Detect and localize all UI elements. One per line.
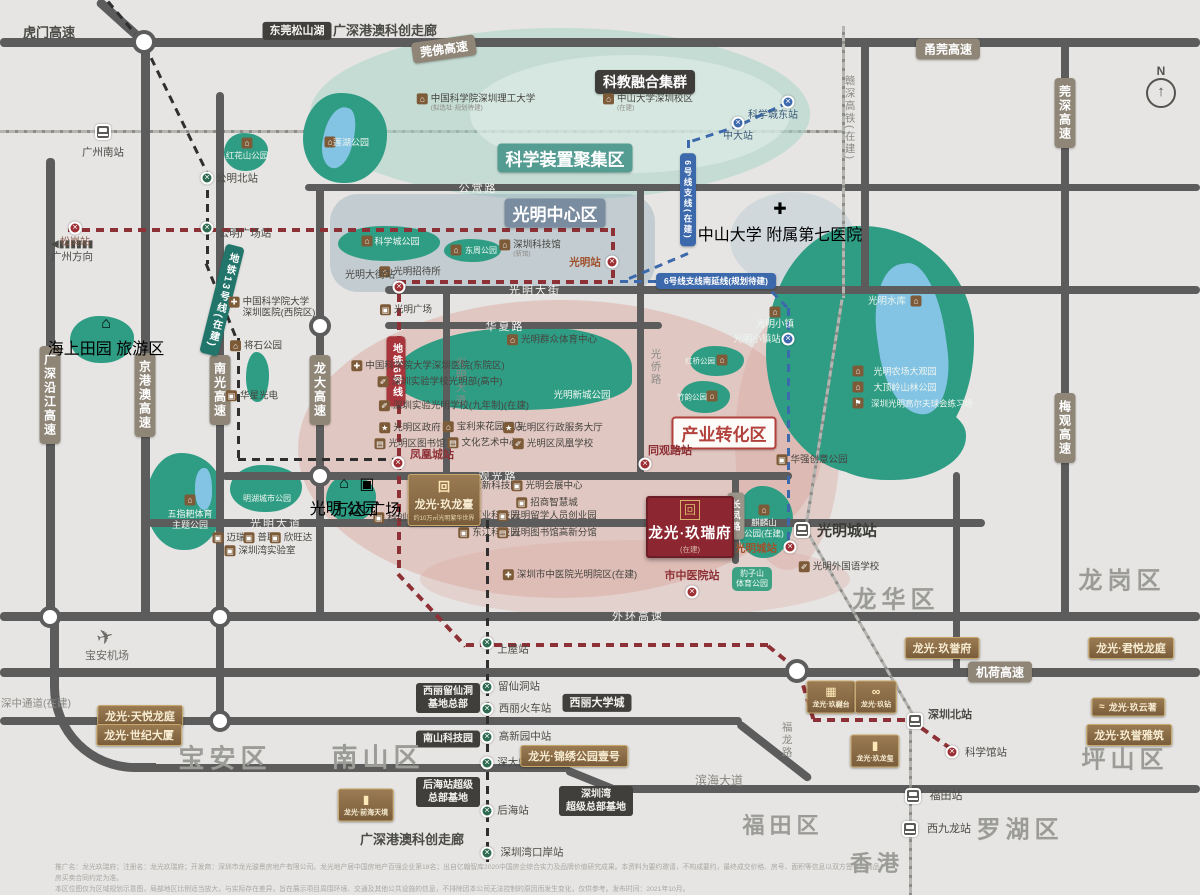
label-gaoxinyuanzhong: 高新园中站 bbox=[499, 730, 552, 743]
poi-sports-center: ⌂光明群众体育中心 bbox=[507, 334, 597, 345]
project-jiulongtai: 回龙光·玖龙臺约10万㎡光明繁华世界 bbox=[408, 474, 481, 526]
badge-xili-liuxiandong: 西丽留仙洞 基地总部 bbox=[416, 683, 480, 713]
icon-dongzhou: ⌂ bbox=[451, 245, 462, 256]
poi-cas-hospital-east: ✚中国科学院大学深圳医院(东院区) bbox=[351, 360, 504, 371]
label-tongguanlu: 同观路站 bbox=[648, 445, 692, 459]
poi-experimental-school-9y: ✐深圳实验光明学校(九年制)(在建) bbox=[379, 400, 529, 411]
poi-jiangshi-park: ⌂将石公园 bbox=[230, 340, 282, 351]
poi-guangming-plaza-icon: ▣ bbox=[380, 304, 391, 315]
poi-foreign-school-icon: ✐ bbox=[799, 561, 810, 572]
badge-edu-cluster: 科教融合集群 bbox=[595, 70, 695, 94]
poi-admin-hall: ★光明区行政服务大厅 bbox=[503, 422, 603, 433]
road-v-right-top bbox=[861, 38, 869, 292]
label-shizhongyiyuan: 市中医院站 bbox=[665, 570, 720, 584]
station-tongguanlu: ✕ bbox=[639, 458, 652, 471]
label-qilinshan: 麒麟山 公园(在建) bbox=[744, 517, 784, 538]
project-jiulongtai-icon: 回 bbox=[438, 478, 450, 495]
station-shenda: ✕ bbox=[481, 757, 494, 770]
poi-foreign-school: ✐光明外国语学校 bbox=[799, 561, 880, 572]
poi-sysu-campus: ⌂中山大学深圳校区(在建) bbox=[603, 93, 693, 112]
project-jiuyufu: 龙光·玖誉府 bbox=[905, 637, 980, 659]
label-guangmingcheng-metro: 光明城站 bbox=[735, 542, 777, 555]
badge-hwy-guanshen: 莞深高速 bbox=[1055, 78, 1076, 148]
badge-nanshan-tech: 南山科技园 bbox=[416, 731, 480, 748]
poi-mairui-icon: ▣ bbox=[212, 532, 223, 543]
station-shenzhenbei bbox=[907, 713, 923, 729]
region-futian: 福田区 bbox=[742, 808, 823, 840]
icon-wuzhipa: ⌂ bbox=[185, 495, 196, 506]
station-gongming-plaza: ✕ bbox=[201, 222, 214, 235]
icon-qilinshan: ⌂ bbox=[759, 505, 770, 516]
label-shenzhong-channel: 深中通道(在建) bbox=[1, 697, 71, 710]
poi-fenghuang-school-icon: ✐ bbox=[513, 438, 524, 449]
station-shangwu: ✕ bbox=[481, 637, 494, 650]
station-gaoxinyuanzhong: ✕ bbox=[481, 731, 494, 744]
compass-north: N↑ bbox=[1144, 64, 1178, 112]
poi-culture-art-center-icon: ▤ bbox=[447, 437, 458, 448]
label-minghu-park: 明湖城市公园 bbox=[243, 494, 291, 504]
icon-golf: ⚑ bbox=[853, 398, 864, 409]
station-houhai: ✕ bbox=[481, 805, 494, 818]
label-guangming-town-st: 光明小镇站 bbox=[733, 334, 781, 346]
road-gongchang bbox=[305, 184, 1200, 191]
label-huaxia-rd: 华夏路 bbox=[486, 318, 525, 334]
project-jiuzuan-icon: ∞ bbox=[872, 685, 881, 699]
station-shizhongyiyuan: ✕ bbox=[686, 586, 699, 599]
poi-exhibition-center-icon: ▣ bbox=[511, 480, 522, 491]
road-top-highway bbox=[0, 38, 1200, 47]
station-zhongda: ✕ bbox=[732, 117, 745, 130]
poi-exhibition-center: ▣光明会展中心 bbox=[511, 480, 582, 491]
label-shenzhenbei: 深圳北站 bbox=[928, 709, 972, 723]
poi-library-branch-icon: ▤ bbox=[497, 527, 508, 538]
project-qianhai-icon: ▮ bbox=[363, 793, 370, 807]
region-baoan: 宝安区 bbox=[178, 739, 271, 776]
poi-haishang-tianyuan-icon: ⌂ bbox=[101, 315, 111, 333]
label-guangming-st: 光明站 bbox=[569, 256, 601, 269]
location-map: 推广名：龙光玖瑞府；注册名：龙光玖瑞府；开发商：深圳市龙光骏景房地产有限公司。龙… bbox=[0, 0, 1200, 895]
disclaimer-line2: 本区位图仅为区域规划示意图，局部地区比例适当放大，与实际存在差异，旨在展示项目周… bbox=[55, 884, 885, 895]
badge-hwy-yongguan: 甬莞高速 bbox=[916, 39, 980, 60]
poi-returnee-park: ▣光明留学人员创业园 bbox=[497, 510, 597, 521]
label-zhuyun-park: 竹韵公园 bbox=[677, 392, 707, 401]
road-south-1-curve bbox=[736, 720, 813, 783]
station-guangming: ✕ bbox=[606, 256, 619, 269]
label-sports-park: 豹子山 体育公园 bbox=[732, 567, 772, 591]
poi-fenghuang-school: ✐光明区凤凰学校 bbox=[513, 438, 594, 449]
poi-szbay-lab: ▣深圳湾实验室 bbox=[224, 545, 295, 556]
project-shiji: 龙光·世纪大厦 bbox=[96, 724, 182, 746]
junction-topleft bbox=[132, 30, 156, 54]
road-v-guangqiao bbox=[637, 184, 644, 478]
poi-experimental-school-9y-icon: ✐ bbox=[379, 400, 390, 411]
poi-zhaoshang-city: ▣招商智慧城 bbox=[516, 497, 578, 508]
station-kexueguan: ✕ bbox=[946, 746, 959, 759]
icon-zhuyun: ⌂ bbox=[707, 391, 718, 402]
label-fenghuangcheng: 凤凰城站 bbox=[410, 449, 454, 463]
station-guangmingcheng-rail bbox=[794, 522, 810, 538]
poi-tcm-hospital-icon: ✚ bbox=[503, 569, 514, 580]
label-kexuechengdong: 科学城东站 bbox=[748, 110, 798, 123]
poi-cas-hospital-east-icon: ✚ bbox=[351, 360, 362, 371]
metro6-seg-c bbox=[398, 280, 613, 284]
label-kexueguan: 科学馆站 bbox=[965, 746, 1007, 759]
label-lianhu: 莲湖公园 bbox=[333, 137, 369, 148]
badge-hwy-jinggangao: 京港澳高速 bbox=[135, 353, 156, 437]
badge-hwy-yanjiang: 广深沿江高速 bbox=[40, 346, 61, 444]
label-wuzhipa: 五指耙体育 主题公园 bbox=[167, 509, 212, 532]
icon-guangming-town: ⌂ bbox=[770, 307, 781, 318]
poi-cas-tech-univ-icon: ⌂ bbox=[417, 93, 428, 104]
label-reservoir: 光明水库 bbox=[868, 296, 906, 308]
label-corridor-top: 广深港澳科创走廊 bbox=[333, 23, 437, 39]
station-kexuechengdong: ✕ bbox=[782, 96, 795, 109]
poi-district-library: ▤光明区图书馆 bbox=[374, 438, 445, 449]
project-jiuzuan: ∞龙光·玖钻 bbox=[855, 681, 897, 714]
poi-district-gov-icon: ★ bbox=[379, 422, 390, 433]
poi-jiangshi-park-icon: ⌂ bbox=[230, 340, 241, 351]
label-zhongda: 中大站 bbox=[723, 131, 753, 144]
label-xincheng-park: 光明新城公园 bbox=[553, 390, 610, 402]
project-jiuyunzhu-icon: ≈ bbox=[1099, 702, 1105, 713]
park-mountain-south bbox=[818, 398, 966, 480]
project-jiuyuetai: ▦龙光·玖樾台 bbox=[806, 681, 855, 714]
project-jiuyuetai-icon: ▦ bbox=[825, 685, 836, 699]
station-fenghuangcheng: ✕ bbox=[392, 457, 405, 470]
region-pingshan-t: 坪山区 bbox=[1082, 740, 1169, 775]
poi-zhaoshang-city-icon: ▣ bbox=[516, 497, 527, 508]
label-guangzhounan: 广州南站 bbox=[82, 146, 124, 159]
label-shangwu: 上屋站 bbox=[497, 643, 529, 656]
region-luohu: 罗湖区 bbox=[977, 810, 1064, 845]
poi-baolilai-hotel-icon: ⌂ bbox=[443, 421, 454, 432]
label-dongzhou: 东周公园 bbox=[465, 246, 497, 256]
poi-guangming-plaza: ▣光明广场 bbox=[380, 304, 432, 315]
label-honghuashan: 红花山公园 bbox=[226, 151, 269, 162]
icon-farm: ⌂ bbox=[853, 366, 864, 377]
road-waihuan bbox=[0, 612, 1200, 621]
label-corridor-bottom: 广深港澳科创走廊 bbox=[360, 832, 464, 848]
poi-sysu-campus-icon: ⌂ bbox=[603, 93, 614, 104]
label-kexuecheng-park: 科学城公园 bbox=[374, 236, 419, 247]
label-gongchang-rd: 公常路 bbox=[459, 180, 498, 196]
lake-wuzhipa bbox=[195, 468, 212, 510]
poi-library-branch: ▤光明图书馆高新分馆 bbox=[497, 527, 597, 538]
poi-xinwangda: ▣欣旺达 bbox=[270, 532, 313, 543]
station-guangzhounan bbox=[95, 124, 111, 140]
poi-mairui: ▣迈瑞 bbox=[212, 532, 245, 543]
label-guangmingdajie-st: 光明大街站 bbox=[345, 270, 395, 283]
icon-reservoir: ⌂ bbox=[911, 296, 922, 307]
station-guangmingdajie: ✕ bbox=[393, 281, 406, 294]
project-junyue: 龙光·君悦龙庭 bbox=[1088, 637, 1174, 659]
poi-huaxing-icon: ▣ bbox=[226, 390, 237, 401]
badge-branch6-south: 6号线支线南延线(规划待建) bbox=[656, 273, 776, 289]
badge-hwy-jihe: 机荷高速 bbox=[968, 662, 1032, 683]
poi-cas-hospital-west: ✚中国科学院大学 深圳医院(西院区) bbox=[229, 297, 316, 320]
poi-szbay-lab-icon: ▣ bbox=[224, 545, 235, 556]
badge-science-zone: 科学装置聚集区 bbox=[498, 144, 633, 173]
label-houhai: 后海站 bbox=[497, 804, 529, 817]
poi-sysu-hospital7: ✚中山大学 附属第七医院 bbox=[698, 199, 862, 245]
badge-houhai-hq: 后海站超级 总部基地 bbox=[416, 777, 480, 807]
project-jiulongxi-icon: ▮ bbox=[872, 739, 879, 753]
poi-guangming-park-icon: ⌂ bbox=[339, 475, 349, 493]
poi-culture-art-center: ▤文化艺术中心 bbox=[447, 437, 518, 448]
label-guangmingcheng-rail: 光明城站 bbox=[817, 523, 877, 542]
region-hongkong: 香港 bbox=[850, 846, 904, 878]
station-futian bbox=[905, 788, 921, 804]
label-dadingling: 大顶岭山林公园 bbox=[873, 382, 936, 393]
badge-branch6: 6号线支线(在建) bbox=[680, 153, 696, 246]
junction-metro-east bbox=[785, 659, 809, 683]
poi-district-gov: ★光明区政府 bbox=[379, 422, 441, 433]
label-songgang: 松岗站 bbox=[60, 237, 90, 250]
region-longhua-t: 龙华区 bbox=[853, 580, 940, 615]
poi-tcm-hospital: ✚深圳市中医院光明院区(在建) bbox=[503, 569, 637, 580]
poi-xinwangda-icon: ▣ bbox=[270, 532, 281, 543]
label-farm: 光明农场大观园 bbox=[873, 366, 936, 377]
icon-honghuashan: ⌂ bbox=[242, 138, 253, 149]
badge-hwy-longda: 龙大高速 bbox=[310, 355, 331, 425]
road-binhai bbox=[598, 785, 1200, 793]
label-futian: 福田站 bbox=[930, 790, 963, 804]
poi-haishang-tianyuan: ⌂海上田园 旅游区 bbox=[48, 315, 164, 359]
station-liuxiandong: ✕ bbox=[481, 681, 494, 694]
poi-science-museum-icon: ⌂ bbox=[499, 239, 510, 250]
region-longgang-t: 龙岗区 bbox=[1079, 561, 1166, 596]
rail-ganshen-v bbox=[842, 26, 845, 298]
road-guangmingdajie bbox=[385, 286, 1200, 294]
poi-admin-hall-icon: ★ bbox=[503, 422, 514, 433]
badge-xili-univ-town: 西丽大学城 bbox=[563, 694, 632, 712]
metro13-seg-b bbox=[144, 45, 211, 178]
station-xili-railway: ✕ bbox=[481, 703, 494, 716]
badge-center-zone: 光明中心区 bbox=[505, 199, 606, 228]
label-ganshen-rail: 赣深高铁(在建) bbox=[842, 75, 855, 161]
poi-returnee-park-icon: ▣ bbox=[497, 510, 508, 521]
poi-cas-tech-univ: ⌂中国科学院深圳理工大学(拟选址·规划待建) bbox=[417, 93, 536, 112]
station-guangmingcheng-metro: ✕ bbox=[784, 541, 797, 554]
road-v-nanguang-s bbox=[216, 618, 224, 723]
icon-dadingling: ⌂ bbox=[853, 382, 864, 393]
label-humen-hwy: 虎门高速 bbox=[23, 25, 75, 41]
poi-cas-hospital-west-icon: ✚ bbox=[229, 297, 240, 308]
label-guangmingdadao-rd: 光明大道 bbox=[250, 515, 302, 531]
project-jiuyunzhu: ≈龙光·玖云著 bbox=[1091, 698, 1165, 717]
icon-kexuecheng-park: ⌂ bbox=[362, 236, 373, 247]
station-xijiulong bbox=[902, 821, 918, 837]
poi-dongjiang-park-icon: ▣ bbox=[458, 527, 469, 538]
project-qianhai: ▮龙光·前海天境 bbox=[338, 789, 394, 822]
badge-szbay-hq: 深圳湾 超级总部基地 bbox=[559, 786, 633, 816]
station-gongmingbei: ✕ bbox=[201, 172, 214, 185]
metro13-seg-c bbox=[206, 176, 209, 264]
badge-hwy-meiguan: 梅观高速 bbox=[1055, 393, 1076, 463]
label-golf: 深圳光明高尔夫球会练习场 bbox=[871, 399, 973, 410]
poi-district-library-icon: ▤ bbox=[374, 438, 385, 449]
label-fulong-rd: 福龙路 bbox=[779, 721, 792, 759]
junction-wa-2 bbox=[209, 606, 231, 628]
label-liuxiandong: 留仙洞站 bbox=[498, 680, 540, 693]
icon-hongqiao: ⌂ bbox=[717, 355, 728, 366]
junction-wa-1 bbox=[39, 606, 61, 628]
jiuruifu-logo: 回 bbox=[680, 500, 700, 520]
label-gongming-plaza: 公明广场站 bbox=[219, 227, 272, 240]
poi-sports-center-icon: ⌂ bbox=[507, 334, 518, 345]
label-binhai-rd: 滨海大道 bbox=[695, 774, 743, 789]
station-songgang: ✕ bbox=[69, 222, 82, 235]
badge-songshanhu: 东莞松山湖 bbox=[263, 22, 332, 40]
project-jinxiu: 龙光·锦绣公园壹号 bbox=[520, 745, 628, 767]
poi-sysu-hospital7-icon: ✚ bbox=[773, 199, 786, 219]
label-shenzhenwan-port: 深圳湾口岸站 bbox=[501, 846, 564, 859]
poi-huaqiang-creative: ▣华强创意公园 bbox=[776, 454, 847, 465]
project-jiulongxi: ▮龙光·玖龙玺 bbox=[850, 735, 899, 768]
label-guangmingdajie-rd: 光明大街 bbox=[509, 282, 561, 298]
poi-pulian-icon: ▣ bbox=[243, 532, 254, 543]
label-guangqiao-rd: 光侨路 bbox=[648, 348, 661, 386]
disclaimer: 推广名：龙光玖瑞府；注册名：龙光玖瑞府；开发商：深圳市龙光骏景房地产有限公司。龙… bbox=[55, 862, 885, 895]
label-hongqiao-park: 红桥公园 bbox=[685, 356, 715, 365]
label-xili-railway: 西丽火车站 bbox=[499, 702, 552, 715]
label-xijiulong: 西九龙站 bbox=[927, 823, 971, 837]
region-nanshan: 南山区 bbox=[331, 738, 424, 775]
poi-science-museum: ⌂深圳科技馆(新馆) bbox=[499, 239, 561, 258]
rail-shenzhenbei-south bbox=[909, 716, 912, 895]
station-guangming-town: ✕ bbox=[782, 333, 795, 346]
poi-guangming-park: ⌂光明 公园 bbox=[310, 475, 378, 519]
project-jiuruifu: 回龙光·玖瑞府(在建) bbox=[646, 496, 734, 558]
label-gongmingbei: 公明北站 bbox=[216, 172, 258, 185]
metro6-seg-a bbox=[68, 228, 613, 232]
poi-huaxing: ▣华星光电 bbox=[226, 390, 278, 401]
station-shenzhenwan-port: ✕ bbox=[481, 847, 494, 860]
poi-experimental-school: ✐深圳实验学校光明部(高中) bbox=[378, 376, 503, 387]
poi-experimental-school-icon: ✐ bbox=[378, 376, 389, 387]
label-guangming-town: 光明小镇 bbox=[756, 319, 794, 331]
poi-huaqiang-creative-icon: ▣ bbox=[776, 454, 787, 465]
disclaimer-line1: 推广名：龙光玖瑞府；注册名：龙光玖瑞府；开发商：深圳市龙光骏景房地产有限公司。龙… bbox=[55, 862, 885, 884]
metro6-seg-i bbox=[813, 718, 912, 722]
label-baoan-airport: 宝安机场 bbox=[85, 650, 129, 664]
junction-south bbox=[209, 710, 231, 732]
metro13-seg-f bbox=[238, 458, 398, 461]
label-waihuan-rd: 外环高速 bbox=[612, 608, 664, 624]
